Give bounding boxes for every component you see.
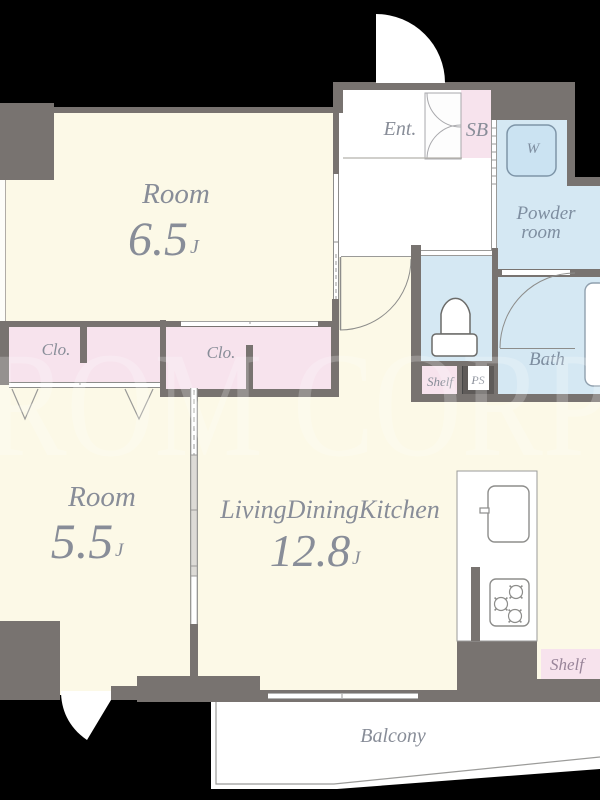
svg-text:W: W <box>527 141 541 157</box>
svg-text:ROM CORP: ROM CORP <box>0 322 600 488</box>
svg-text:6.5: 6.5 <box>128 213 188 266</box>
svg-text:LivingDiningKitchen: LivingDiningKitchen <box>219 495 440 524</box>
svg-text:Ent.: Ent. <box>383 118 417 140</box>
svg-text:12.8: 12.8 <box>270 525 351 576</box>
svg-text:Shelf: Shelf <box>550 655 586 674</box>
svg-text:Balcony: Balcony <box>360 725 426 747</box>
svg-text:Powder: Powder <box>515 203 576 224</box>
svg-text:J: J <box>190 236 200 258</box>
svg-text:Room: Room <box>141 178 210 210</box>
svg-text:5.5: 5.5 <box>51 513 114 569</box>
svg-text:room: room <box>521 222 560 243</box>
svg-text:SB: SB <box>466 119 488 141</box>
